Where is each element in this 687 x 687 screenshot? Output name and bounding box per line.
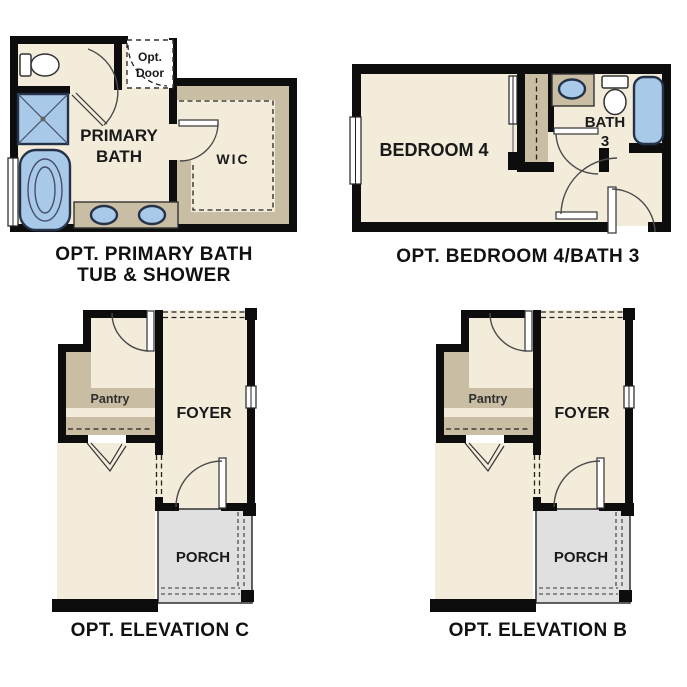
bathtub-icon <box>20 150 70 230</box>
sink-icon <box>91 206 117 224</box>
pantry-shelf-band <box>444 417 533 435</box>
bath3-label-1: BATH <box>585 114 626 131</box>
primary-bath-label-2: BATH <box>96 147 142 166</box>
shelf-gap <box>444 408 533 417</box>
caption-elevation-b-line: OPT. ELEVATION B <box>426 620 650 641</box>
bedroom4-label: BEDROOM 4 <box>379 140 488 160</box>
shower-icon <box>18 94 68 144</box>
caption-primary-bath: OPT. PRIMARY BATH TUB & SHOWER <box>8 244 300 286</box>
closet-shelving <box>525 74 548 164</box>
plan-bedroom4-bath3: BEDROOM 4 BATH 3 <box>348 60 687 240</box>
bathtub-icon <box>634 77 663 144</box>
sink-icon <box>139 206 165 224</box>
toilet-icon <box>602 76 628 115</box>
plan-elevation-b-drawing: Pantry FOYER PORCH <box>428 303 640 617</box>
optional-door: Opt. Door <box>127 40 173 88</box>
bath3-label-2: 3 <box>601 133 609 150</box>
window-icon <box>246 386 256 408</box>
plan-primary-bath: Opt. Door PRIMARY BATH WIC <box>6 28 302 236</box>
caption-bedroom4-bath3: OPT. BEDROOM 4/BATH 3 <box>350 246 686 267</box>
pantry-shelf-band <box>66 417 155 435</box>
wic-label: WIC <box>216 151 249 167</box>
window-icon <box>8 158 18 226</box>
closet-floor-lower <box>469 352 533 388</box>
closet-floor-lower <box>91 352 155 388</box>
pantry-label: Pantry <box>469 392 508 406</box>
plan-elevation-c-drawing: Pantry FOYER PORCH <box>50 303 262 617</box>
opt-door-label-1: Opt. <box>138 50 162 64</box>
caption-elevation-b: OPT. ELEVATION B <box>426 620 650 641</box>
pantry-label: Pantry <box>91 392 130 406</box>
cased-opening <box>155 455 163 497</box>
toilet-icon <box>20 54 59 76</box>
cased-opening <box>533 455 541 497</box>
plan-elevation-c: Pantry FOYER PORCH <box>50 303 262 617</box>
caption-bedroom4-bath3-line: OPT. BEDROOM 4/BATH 3 <box>350 246 686 267</box>
shelf-gap <box>66 408 155 417</box>
porch-label: PORCH <box>554 549 608 566</box>
caption-elevation-c: OPT. ELEVATION C <box>48 620 272 641</box>
plan-bedroom4-bath3-drawing: BEDROOM 4 BATH 3 <box>348 60 687 240</box>
plan-elevation-b: Pantry FOYER PORCH <box>428 303 640 617</box>
opt-door-label-2: Door <box>136 66 164 80</box>
foyer-label: FOYER <box>176 405 232 422</box>
primary-bath-label-1: PRIMARY <box>80 126 158 145</box>
window-icon <box>624 386 634 408</box>
double-vanity <box>74 202 178 228</box>
plan-primary-bath-drawing: Opt. Door PRIMARY BATH WIC <box>6 28 302 236</box>
window-icon <box>350 117 361 184</box>
vanity <box>552 74 594 106</box>
foyer-label: FOYER <box>554 405 610 422</box>
caption-elevation-c-line: OPT. ELEVATION C <box>48 620 272 641</box>
caption-primary-bath-line1: OPT. PRIMARY BATH <box>8 244 300 265</box>
porch-label: PORCH <box>176 549 230 566</box>
sink-icon <box>559 80 585 99</box>
caption-primary-bath-line2: TUB & SHOWER <box>8 265 300 286</box>
